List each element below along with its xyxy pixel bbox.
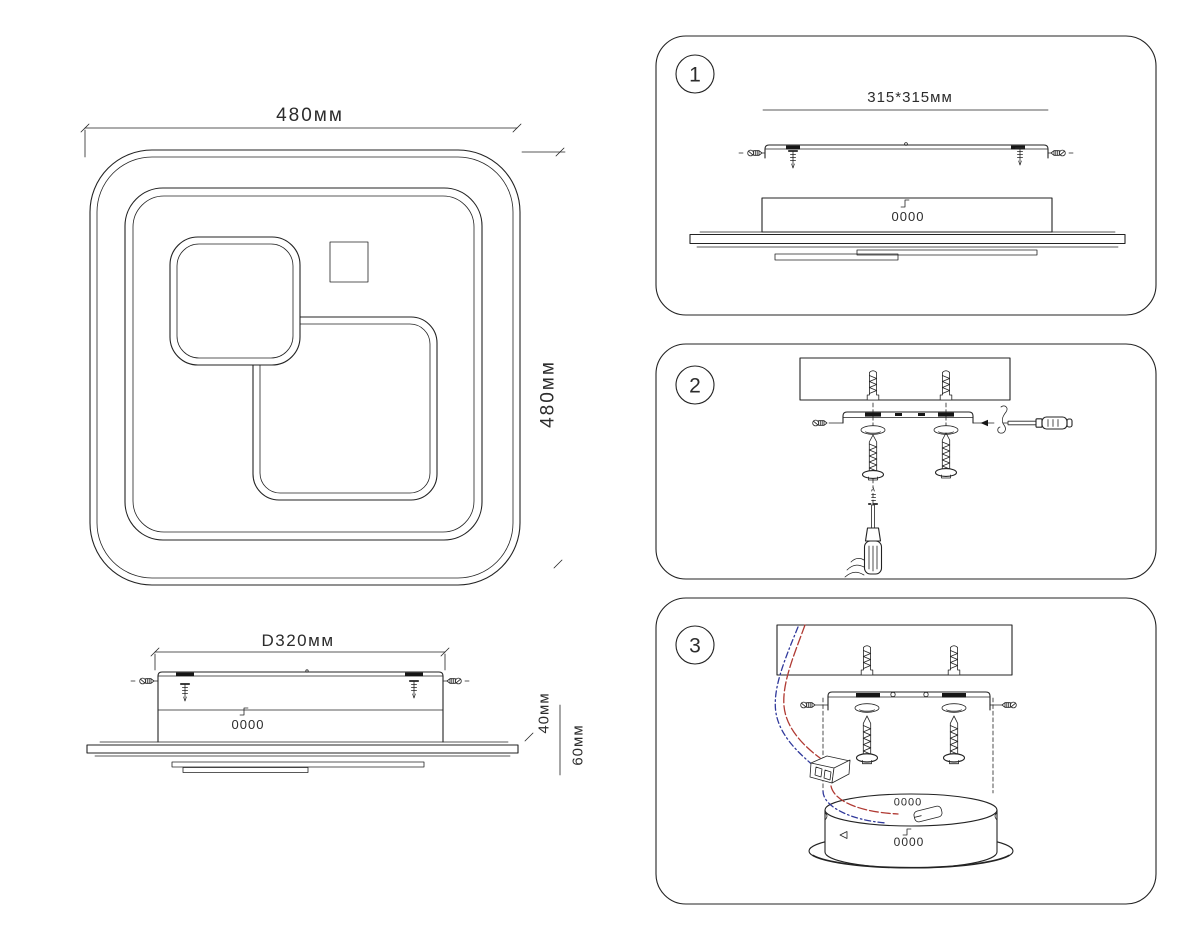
side-view-figure: D320мм 0000 [60, 600, 600, 810]
side-screw-right-icon [447, 678, 461, 684]
mounting-bracket [739, 143, 1074, 168]
lamp-panel-side [690, 232, 1125, 260]
screw-icon [1016, 148, 1024, 165]
terminal-block [810, 756, 850, 783]
step-panel-3: 3 [655, 597, 1157, 905]
hand-icon [845, 558, 864, 577]
wall-anchor-icon [861, 646, 873, 675]
washer-icon [855, 704, 879, 713]
lamp-inner-square-small [170, 237, 300, 365]
connector-label: 0000 [232, 717, 265, 732]
top-view-height-dimension: 480мм [522, 148, 565, 568]
wire-blue [775, 627, 815, 767]
ceiling [800, 358, 1010, 400]
side-screw-left-icon [801, 702, 815, 708]
mounting-bracket [131, 670, 470, 701]
connector-label: 0000 [892, 209, 925, 224]
top-view-width-label: 480мм [276, 105, 344, 126]
step-panel-2: 2 [655, 343, 1157, 580]
wall-anchor-icon [948, 646, 960, 675]
lamp-body-side: 0000 [762, 198, 1052, 232]
plate-dimension: 315*315мм [763, 89, 1048, 110]
washer-icon [942, 704, 966, 713]
screw-icon [181, 684, 189, 701]
lamp-center-square [330, 242, 368, 282]
side-view-width-label: D320мм [261, 631, 334, 650]
lamp-body-side: 0000 [158, 684, 443, 742]
step-number-badge: 1 [676, 55, 714, 93]
turn-arrow-icon [998, 406, 1007, 433]
step-number: 2 [689, 375, 701, 398]
mounting-screw-icon [944, 716, 965, 764]
mounting-screw-icon [857, 716, 878, 764]
top-view-height-label: 480мм [538, 360, 559, 428]
connector-bracket-mark [901, 200, 909, 207]
ceiling [777, 625, 1012, 675]
side-view-width-dimension: D320мм [151, 631, 449, 670]
side-view-height-dimensions: 40мм 60мм [525, 692, 586, 775]
screwdriver-vertical-icon [845, 487, 882, 577]
side-screw-left-icon [748, 150, 762, 156]
step-number-badge: 2 [676, 366, 714, 404]
connector-bracket-mark [240, 708, 248, 715]
step-panel-1: 1 315*315мм 0000 [655, 35, 1157, 316]
step-number-badge: 3 [676, 626, 714, 664]
lamp-outer-frame [90, 150, 520, 585]
lamp-panel-side [87, 742, 518, 773]
side-screw-left-icon [813, 420, 827, 426]
step-number: 3 [689, 635, 701, 658]
wall-anchor-icon [867, 371, 879, 400]
screw-icon [410, 681, 418, 698]
plate-dimension-label: 315*315мм [867, 89, 953, 106]
wall-anchor-icon [940, 371, 952, 400]
mounting-bracket [813, 412, 973, 434]
connector-label-top: 0000 [893, 795, 921, 807]
mounting-bracket [801, 692, 1017, 712]
screwdriver-horizontal-icon [973, 406, 1072, 433]
side-screw-left-icon [140, 678, 154, 684]
mounting-screw-icon [936, 433, 957, 478]
wire-red [784, 625, 820, 758]
connector-label-front: 0000 [894, 835, 925, 849]
top-view-width-dimension: 480мм [81, 105, 521, 157]
page: 480мм 480мм D320 [0, 0, 1200, 933]
top-view-figure: 480мм 480мм [60, 100, 600, 610]
side-view-height-outer-label: 60мм [569, 724, 586, 765]
side-view-height-inner-label: 40мм [535, 692, 552, 733]
lamp-base-round: 0000 0000 [809, 794, 1013, 868]
mounting-screw-icon [863, 435, 884, 480]
panel-border [656, 344, 1156, 579]
side-screw-right-icon [1002, 702, 1016, 708]
washer-icon [861, 426, 885, 435]
screw-icon [789, 151, 797, 168]
step-number: 1 [689, 64, 701, 87]
panel-border [656, 36, 1156, 315]
side-screw-right-icon [1051, 150, 1065, 156]
